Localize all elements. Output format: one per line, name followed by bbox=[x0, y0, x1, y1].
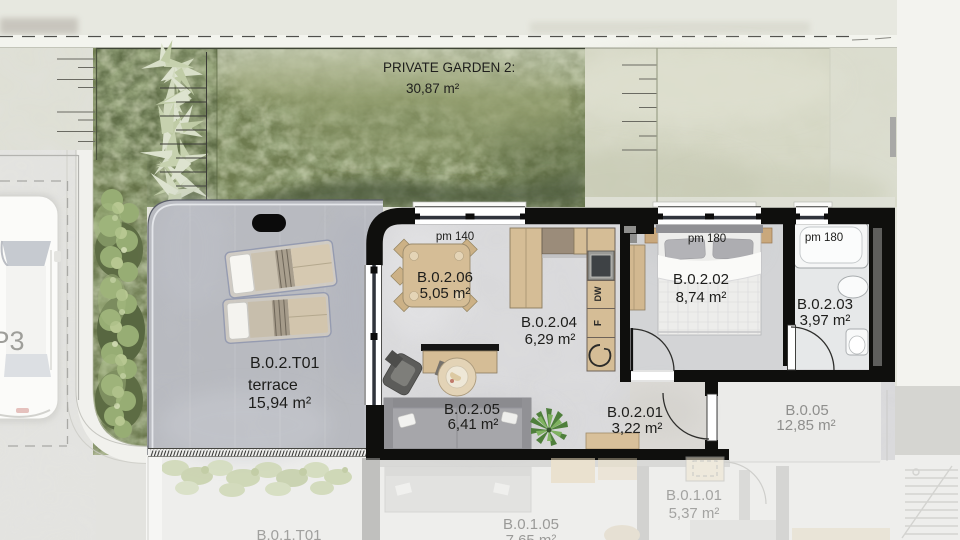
svg-text:DW: DW bbox=[593, 286, 603, 301]
svg-text:B.0.1.01: B.0.1.01 bbox=[666, 487, 722, 504]
svg-text:7,65 m²: 7,65 m² bbox=[506, 532, 557, 540]
svg-text:B.0.2.06: B.0.2.06 bbox=[417, 269, 473, 286]
svg-text:15,94 m²: 15,94 m² bbox=[248, 395, 312, 412]
svg-text:3,22 m²: 3,22 m² bbox=[612, 420, 663, 437]
svg-text:pm 180: pm 180 bbox=[805, 232, 843, 244]
svg-text:5,37 m²: 5,37 m² bbox=[669, 505, 720, 522]
svg-text:B.0.1.05: B.0.1.05 bbox=[503, 516, 559, 533]
svg-text:F: F bbox=[593, 320, 604, 326]
svg-text:5,05 m²: 5,05 m² bbox=[420, 285, 471, 302]
svg-text:B.0.1.T01: B.0.1.T01 bbox=[256, 527, 321, 540]
svg-text:pm 180: pm 180 bbox=[688, 233, 726, 245]
svg-text:B.0.2.01: B.0.2.01 bbox=[607, 404, 663, 421]
svg-text:B.0.2.02: B.0.2.02 bbox=[673, 271, 729, 288]
svg-text:8,74 m²: 8,74 m² bbox=[676, 289, 727, 306]
svg-text:6,41 m²: 6,41 m² bbox=[448, 416, 499, 433]
svg-text:6,29 m²: 6,29 m² bbox=[525, 331, 576, 348]
svg-text:terrace: terrace bbox=[248, 377, 298, 394]
svg-text:B.0.2.T01: B.0.2.T01 bbox=[250, 355, 319, 372]
svg-text:PRIVATE GARDEN 2:: PRIVATE GARDEN 2: bbox=[383, 60, 515, 75]
svg-text:B.0.2.03: B.0.2.03 bbox=[797, 296, 853, 313]
svg-text:3,97 m²: 3,97 m² bbox=[800, 312, 851, 329]
svg-text:P3: P3 bbox=[0, 326, 25, 356]
svg-text:B.0.2.04: B.0.2.04 bbox=[521, 314, 577, 331]
svg-text:pm 140: pm 140 bbox=[436, 231, 474, 243]
svg-text:12,85 m²: 12,85 m² bbox=[776, 417, 835, 434]
svg-text:30,87 m²: 30,87 m² bbox=[406, 81, 460, 96]
